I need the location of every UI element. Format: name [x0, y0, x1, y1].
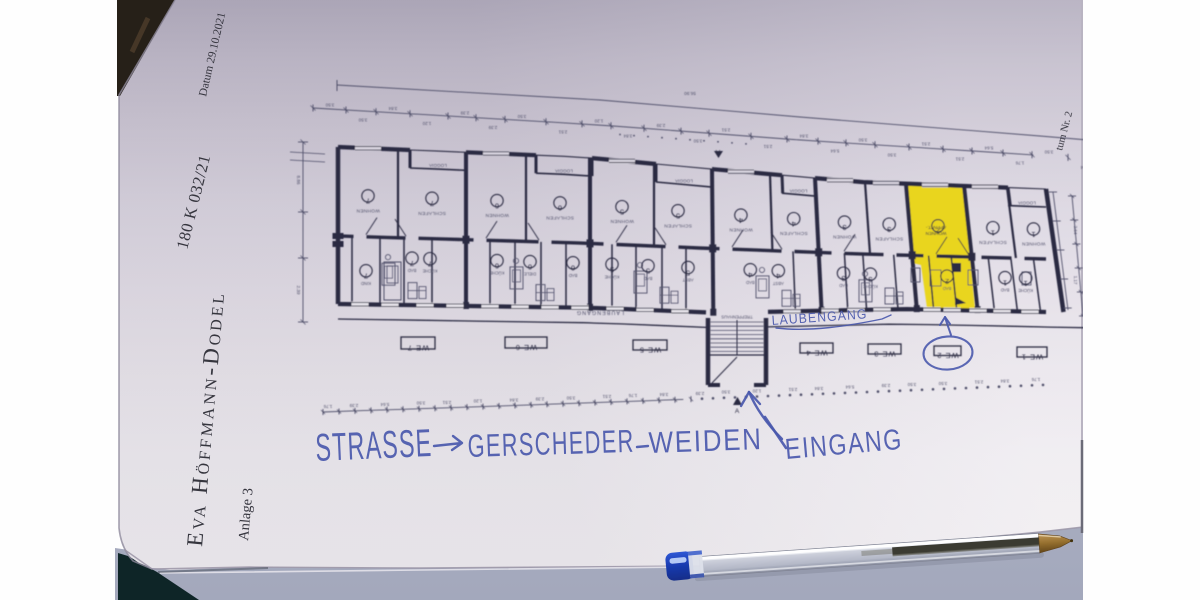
svg-text:STRASSE: STRASSE [315, 422, 434, 470]
svg-text:2.51: 2.51 [788, 387, 797, 392]
svg-text:BAD: BAD [408, 268, 417, 273]
svg-text:3.84: 3.84 [814, 386, 823, 391]
svg-text:DIELE: DIELE [524, 272, 536, 277]
svg-text:2.39: 2.39 [535, 397, 544, 402]
svg-text:3.84: 3.84 [388, 106, 397, 111]
svg-text:WE 3: WE 3 [873, 350, 895, 359]
svg-text:6: 6 [495, 201, 499, 210]
svg-text:WOHNEN: WOHNEN [485, 212, 509, 218]
svg-text:3: 3 [842, 223, 846, 232]
svg-text:ABST: ABST [682, 278, 693, 283]
svg-text:2.51: 2.51 [974, 380, 983, 385]
svg-text:2.51: 2.51 [721, 128, 730, 133]
svg-text:1: 1 [991, 229, 995, 238]
svg-text:5: 5 [676, 212, 680, 221]
svg-text:A: A [715, 148, 720, 155]
svg-text:1.76: 1.76 [628, 393, 637, 398]
svg-text:1: 1 [1003, 278, 1007, 287]
svg-text:3.84: 3.84 [509, 398, 518, 403]
svg-text:1: 1 [1024, 279, 1028, 288]
svg-text:1.17: 1.17 [1073, 276, 1078, 285]
svg-text:TREPPENHAUS: TREPPENHAUS [721, 315, 753, 320]
svg-text:3.50: 3.50 [566, 396, 575, 401]
svg-text:4: 4 [776, 272, 780, 281]
svg-text:LOGGIA: LOGGIA [789, 189, 808, 194]
svg-text:3: 3 [868, 275, 872, 284]
svg-text:2.39: 2.39 [695, 391, 704, 396]
svg-text:WOHNEN: WOHNEN [1021, 241, 1045, 247]
svg-text:7: 7 [410, 259, 414, 268]
svg-text:1.76: 1.76 [323, 404, 332, 409]
svg-text:KÜCHE: KÜCHE [489, 271, 504, 276]
svg-text:WE 5: WE 5 [639, 346, 661, 355]
svg-text:5: 5 [646, 267, 650, 276]
svg-text:1.20: 1.20 [594, 118, 603, 123]
svg-text:3.50: 3.50 [1044, 149, 1053, 154]
svg-text:2.51: 2.51 [763, 144, 772, 149]
svg-text:WOHNEN: WOHNEN [926, 231, 947, 236]
svg-text:3.84: 3.84 [623, 133, 632, 138]
svg-text:LAUBENGANG: LAUBENGANG [576, 309, 624, 315]
svg-text:LOGGIA: LOGGIA [674, 179, 693, 184]
svg-text:6: 6 [495, 261, 499, 270]
svg-text:2.39: 2.39 [349, 403, 358, 408]
svg-text:A: A [735, 408, 740, 415]
svg-text:4: 4 [792, 220, 796, 229]
svg-text:WE 6: WE 6 [515, 343, 537, 352]
svg-text:2.39: 2.39 [881, 383, 890, 388]
svg-text:7: 7 [366, 197, 370, 206]
svg-text:2: 2 [945, 277, 949, 286]
svg-text:3: 3 [841, 274, 845, 283]
svg-text:BAD: BAD [1001, 288, 1010, 293]
svg-text:3.84: 3.84 [1000, 378, 1009, 383]
svg-text:3.50: 3.50 [358, 118, 367, 123]
svg-text:3.50: 3.50 [693, 139, 702, 144]
svg-text:6: 6 [571, 264, 575, 273]
svg-text:8.86: 8.86 [296, 176, 301, 185]
svg-text:WEIDEN: WEIDEN [648, 423, 763, 460]
svg-text:WOHNEN: WOHNEN [729, 227, 753, 233]
svg-text:1: 1 [1031, 230, 1035, 239]
svg-text:3.84: 3.84 [799, 134, 808, 139]
svg-text:2.51: 2.51 [558, 129, 567, 134]
svg-text:3.50: 3.50 [887, 152, 896, 157]
svg-text:3.50: 3.50 [938, 381, 947, 386]
svg-text:1.20: 1.20 [752, 389, 761, 394]
svg-text:BAD: BAD [746, 280, 755, 285]
svg-text:WE 1: WE 1 [1021, 353, 1043, 362]
svg-text:Eva Höffmann-Dodel: Eva Höffmann-Dodel [182, 290, 229, 548]
svg-text:SCHLAFEN: SCHLAFEN [875, 236, 903, 242]
svg-text:EINGANG: EINGANG [784, 424, 904, 466]
svg-text:2.51: 2.51 [921, 142, 930, 147]
svg-text:2.51: 2.51 [955, 157, 964, 162]
svg-text:WE 4: WE 4 [805, 349, 827, 358]
svg-text:3.50: 3.50 [517, 114, 526, 119]
svg-text:180 K 032/21: 180 K 032/21 [172, 152, 214, 250]
svg-text:5.64: 5.64 [830, 149, 839, 154]
svg-text:BAD: BAD [569, 273, 578, 278]
svg-text:5: 5 [620, 208, 624, 217]
svg-text:WOHNEN: WOHNEN [356, 207, 380, 213]
svg-text:3.50: 3.50 [907, 382, 916, 387]
svg-text:KÜCHE: KÜCHE [863, 284, 878, 289]
svg-text:2.51: 2.51 [602, 394, 611, 399]
svg-text:5.64: 5.64 [984, 146, 993, 151]
svg-text:LOGGIA: LOGGIA [428, 163, 447, 168]
svg-text:ABST: ABST [772, 281, 783, 286]
svg-text:BAD: BAD [839, 283, 848, 288]
svg-text:WE 7: WE 7 [407, 344, 429, 353]
svg-text:Anlage 3: Anlage 3 [236, 487, 257, 541]
svg-text:WE 2: WE 2 [936, 351, 958, 360]
svg-text:WOHNEN: WOHNEN [832, 234, 856, 240]
svg-text:5: 5 [686, 268, 690, 277]
svg-text:BAD: BAD [644, 276, 653, 281]
svg-text:3: 3 [887, 225, 891, 234]
svg-text:7: 7 [428, 260, 432, 269]
svg-text:56.90: 56.90 [684, 91, 696, 96]
svg-text:3.50: 3.50 [416, 401, 425, 406]
svg-text:LOGGIA: LOGGIA [554, 168, 573, 173]
svg-text:5.64: 5.64 [380, 402, 389, 407]
svg-text:6: 6 [528, 262, 532, 271]
svg-text:SCHLAFEN: SCHLAFEN [418, 210, 446, 216]
svg-text:KÜCHE: KÜCHE [422, 269, 437, 274]
svg-text:SCHLAFEN: SCHLAFEN [546, 214, 574, 220]
svg-text:1.76: 1.76 [1031, 377, 1040, 382]
svg-text:2.51: 2.51 [442, 400, 451, 405]
svg-text:7: 7 [364, 272, 368, 281]
svg-text:2.39: 2.39 [296, 286, 301, 295]
svg-text:2.64: 2.64 [1073, 226, 1078, 235]
svg-text:3.50: 3.50 [858, 137, 867, 142]
svg-text:1.20: 1.20 [422, 121, 431, 126]
svg-text:2.39: 2.39 [460, 111, 469, 116]
svg-text:4: 4 [748, 271, 752, 280]
svg-text:GERSCHEDER: GERSCHEDER [467, 423, 635, 464]
svg-text:SCHLAFEN: SCHLAFEN [979, 239, 1007, 245]
svg-text:2.39: 2.39 [488, 125, 497, 130]
svg-text:tum Nr. 2: tum Nr. 2 [1054, 110, 1075, 151]
svg-text:6: 6 [558, 204, 562, 213]
svg-text:3.50: 3.50 [721, 390, 730, 395]
svg-text:7: 7 [430, 199, 434, 208]
svg-text:KÜCHE: KÜCHE [604, 274, 619, 279]
svg-text:APPART.-: APPART.- [925, 225, 946, 230]
svg-text:2.39: 2.39 [656, 123, 665, 128]
svg-text:WOHNEN: WOHNEN [610, 218, 634, 224]
svg-text:KIND: KIND [361, 281, 371, 286]
svg-text:KÜCHE: KÜCHE [1018, 288, 1033, 293]
svg-text:4: 4 [739, 216, 743, 225]
svg-text:5: 5 [610, 265, 614, 274]
svg-text:1.20: 1.20 [473, 399, 482, 404]
svg-text:LOGGIA: LOGGIA [1017, 200, 1036, 205]
svg-text:3.50: 3.50 [325, 103, 334, 108]
svg-text:5.64: 5.64 [1080, 165, 1089, 170]
svg-text:5.64: 5.64 [845, 385, 854, 390]
svg-text:SCHLAFEN: SCHLAFEN [779, 230, 807, 236]
svg-text:BAD: BAD [943, 286, 952, 291]
svg-text:Datum 29.10.2021: Datum 29.10.2021 [197, 11, 228, 98]
svg-text:SCHLAFEN: SCHLAFEN [664, 222, 692, 228]
svg-text:3.84: 3.84 [659, 392, 668, 397]
svg-text:1.76: 1.76 [1015, 161, 1024, 166]
